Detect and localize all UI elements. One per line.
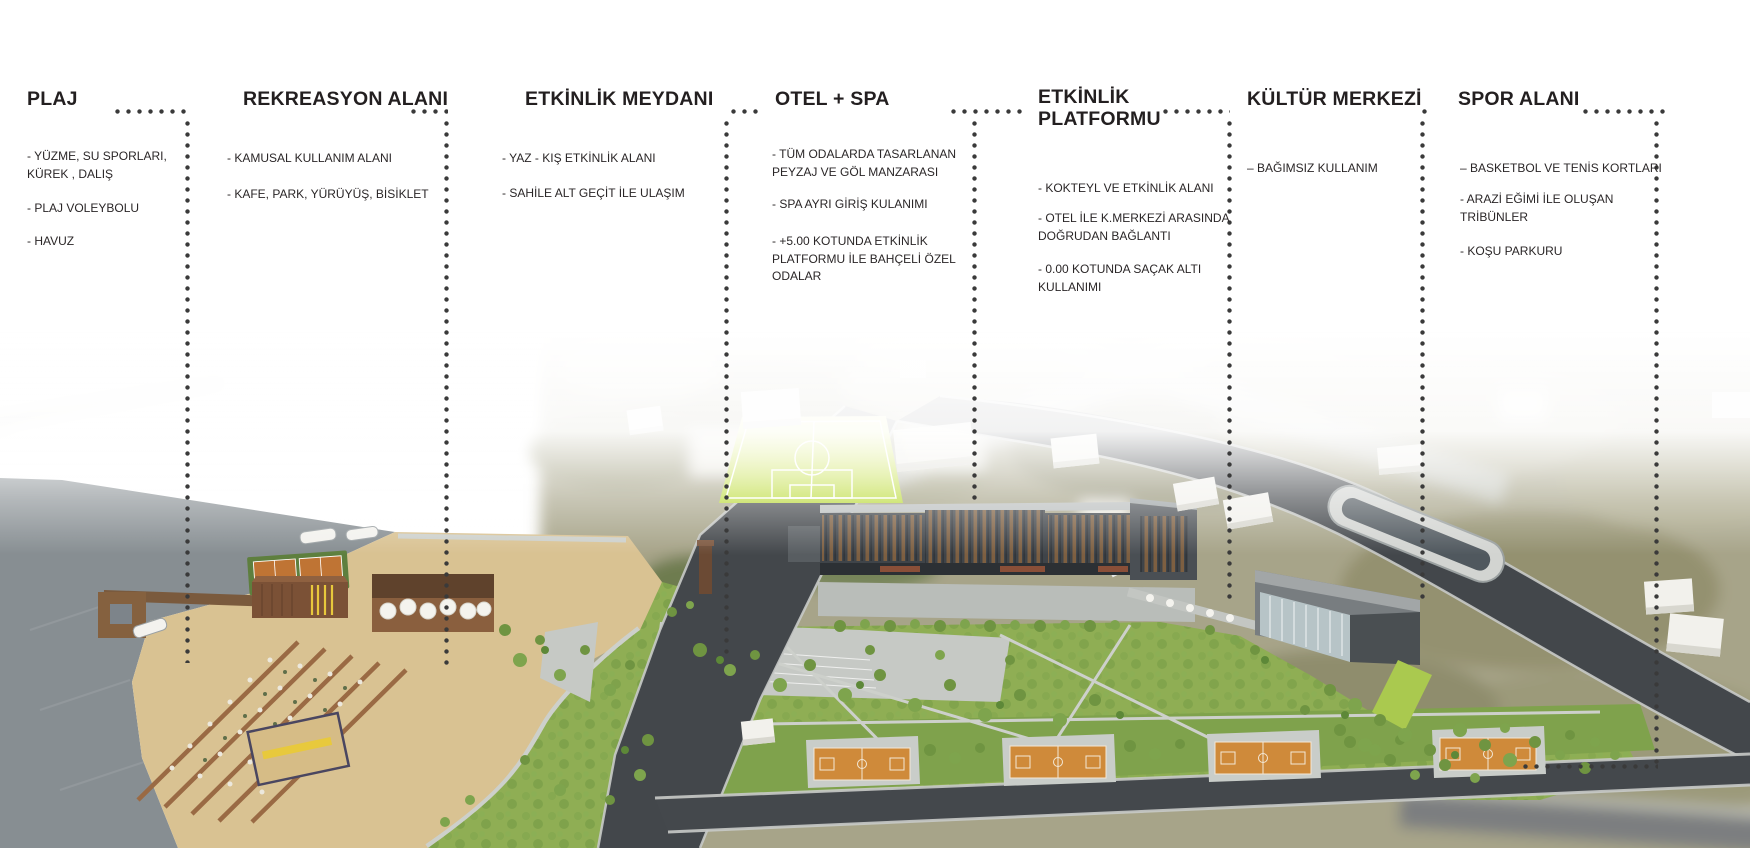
leader-spor-v [1654,118,1659,768]
legend-item: - ARAZİ EĞİMİ İLE OLUŞAN TRİBÜNLER [1460,191,1640,226]
legend-item: – BASKETBOL VE TENİS KORTLARI [1460,160,1665,178]
leader-meydan-v [724,118,729,660]
section-title-meydan: ETKİNLİK MEYDANI [525,88,713,110]
leader-spor-h [1580,109,1668,114]
leader-plaj-h [112,109,188,114]
leader-platform-h [1160,109,1230,114]
section-title-otel-spa: OTEL + SPA [775,88,890,110]
leader-otel-h [948,109,1024,114]
legend-item: - KAFE, PARK, YÜRÜYÜŞ, BİSİKLET [227,186,457,204]
legend-item: - SAHİLE ALT GEÇİT İLE ULAŞIM [502,185,717,203]
legend-item: - 0.00 KOTUNDA SAÇAK ALTI KULLANIMI [1038,261,1253,296]
legend-item: - OTEL İLE K.MERKEZİ ARASINDA DOĞRUDAN B… [1038,210,1270,245]
section-title-rekreasyon: REKREASYON ALANI [243,88,448,110]
section-title-platform: ETKİNLİK PLATFORMU [1038,86,1161,130]
legend-item: – BAĞIMSIZ KULLANIM [1247,160,1437,178]
legend-item: - YAZ - KIŞ ETKİNLİK ALANI [502,150,712,168]
white-fade [0,330,1750,555]
leader-otel-v [972,118,977,502]
site-render [0,330,1750,848]
legend-item: - SPA AYRI GİRİŞ KULANIMI [772,196,972,214]
legend-item: - HAVUZ [27,233,195,251]
legend-item: - KAMUSAL KULLANIM ALANI [227,150,457,168]
leader-spor-h2 [1520,764,1658,769]
beach-building [252,576,348,618]
legend-item: - PLAJ VOLEYBOLU [27,200,195,218]
legend-item: - +5.00 KOTUNDA ETKİNLİK PLATFORMU İLE B… [772,233,972,286]
masterplan-board: PLAJ - YÜZME, SU SPORLARI, KÜREK , DALIŞ… [0,0,1750,848]
section-title-plaj: PLAJ [27,88,78,110]
hotel-forecourt [818,582,1195,622]
legend-item: - TÜM ODALARDA TASARLANAN PEYZAJ VE GÖL … [772,146,972,181]
legend-item: - YÜZME, SU SPORLARI, KÜREK , DALIŞ [27,148,195,183]
leader-kultur-v [1420,118,1425,603]
legend-item: - KOŞU PARKURU [1460,243,1620,261]
leader-meydan-h [728,109,760,114]
legend-item: - KOKTEYL VE ETKİNLİK ALANI [1038,180,1266,198]
cafe-terrace [372,574,494,632]
section-title-kultur: KÜLTÜR MERKEZİ [1247,88,1422,110]
section-title-spor: SPOR ALANI [1458,88,1580,110]
